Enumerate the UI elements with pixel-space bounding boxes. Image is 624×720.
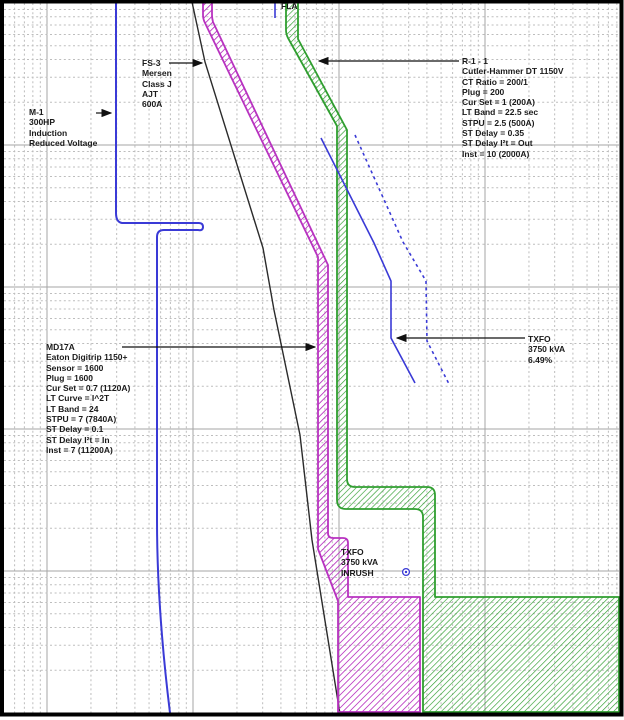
r1-1-line: Cutler-Hammer DT 1150V [462,66,564,76]
r1-1-line: Inst = 10 (2000A) [462,149,564,159]
fs3-line: Class J [142,79,172,89]
md17a-line: LT Curve = I^2T [46,393,130,403]
r1-1-line: STPU = 2.5 (500A) [462,118,564,128]
r1-1-line: Cur Set = 1 (200A) [462,97,564,107]
md17a-label[interactable]: MD17A Eaton Digitrip 1150+ Sensor = 1600… [46,342,130,455]
txfo-damage-curve-shifted[interactable] [355,135,449,384]
txfo-inrush-line: 3750 kVA [341,557,378,567]
md17a-line: ST Delay = 0.1 [46,424,130,434]
md17a-line: Cur Set = 0.7 (1120A) [46,383,130,393]
txfo-line: 6.49% [528,355,565,365]
r1-1-label[interactable]: R-1 - 1 Cutler-Hammer DT 1150V CT Ratio … [462,56,564,159]
md17a-line: Sensor = 1600 [46,363,130,373]
txfo-inrush-marker[interactable] [403,569,410,576]
m1-label[interactable]: M-1 300HP Induction Reduced Voltage [29,107,97,148]
r1-1-line: Plug = 200 [462,87,564,97]
fs3-line: AJT [142,89,172,99]
md17a-line: ST Delay I²t = In [46,435,130,445]
fla-text: FLA [281,1,298,11]
txfo-inrush-label[interactable]: TXFO 3750 kVA INRUSH [341,547,378,578]
md17a-line: Eaton Digitrip 1150+ [46,352,130,362]
md17a-line: MD17A [46,342,130,352]
tcc-plot: FLA M-1 300HP Induction Reduced Voltage … [0,0,624,720]
r1-1-line: ST Delay I²t = Out [462,138,564,148]
m1-line: Induction [29,128,97,138]
txfo-inrush-line: TXFO [341,547,378,557]
r1-1-line: R-1 - 1 [462,56,564,66]
m1-line: 300HP [29,117,97,127]
txfo-damage-curve[interactable] [321,138,415,383]
md17a-line: LT Band = 24 [46,404,130,414]
md17a-line: Plug = 1600 [46,373,130,383]
txfo-inrush-line: INRUSH [341,568,378,578]
md17a-line: STPU = 7 (7840A) [46,414,130,424]
fs3-line: 600A [142,99,172,109]
fs3-line: FS-3 [142,58,172,68]
txfo-line: 3750 kVA [528,344,565,354]
r1-1-line: LT Band = 22.5 sec [462,107,564,117]
r1-1-line: ST Delay = 0.35 [462,128,564,138]
fs3-label[interactable]: FS-3 Mersen Class J AJT 600A [142,58,172,109]
r1-1-line: CT Ratio = 200/1 [462,77,564,87]
md17a-line: Inst = 7 (11200A) [46,445,130,455]
md17a-breaker-band[interactable] [203,2,420,712]
m1-line: M-1 [29,107,97,117]
txfo-line: TXFO [528,334,565,344]
txfo-label[interactable]: TXFO 3750 kVA 6.49% [528,334,565,365]
m1-line: Reduced Voltage [29,138,97,148]
fla-label: FLA [281,1,298,11]
fs3-line: Mersen [142,68,172,78]
r1-1-relay-band[interactable] [286,2,619,712]
